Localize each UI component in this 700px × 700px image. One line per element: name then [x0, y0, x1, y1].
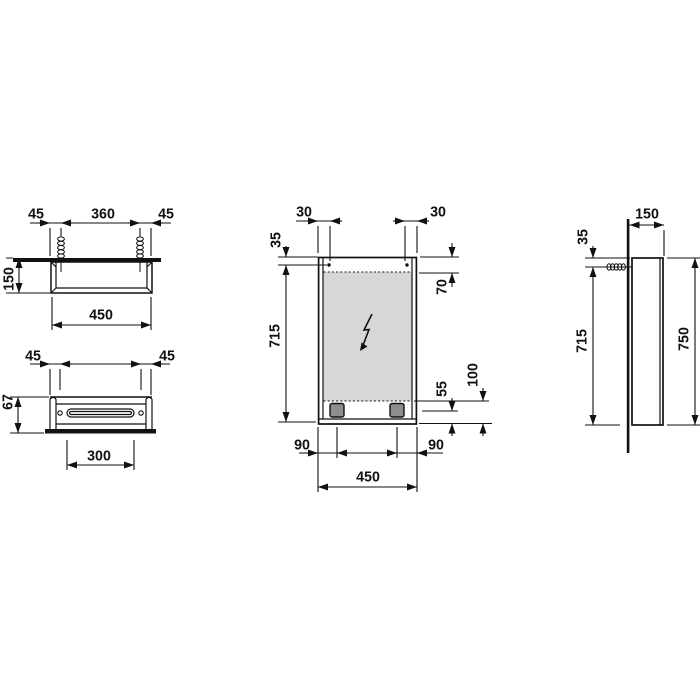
dim-front-mount-height: 715: [268, 324, 283, 348]
technical-drawing-canvas: [0, 0, 700, 700]
dim-side-depth: 150: [635, 207, 659, 222]
bottom-view-cabinet-body: [50, 397, 152, 429]
dim-front-mount-top: 35: [269, 232, 284, 248]
side-view-wall-line: [627, 219, 630, 453]
dim-side-height: 750: [677, 327, 692, 351]
dim-top-mount-left: 45: [28, 207, 44, 222]
dim-front-mount-inset-left: 30: [296, 205, 312, 220]
dim-front-glass-bottom: 100: [466, 363, 481, 387]
mirror-glass: [324, 272, 412, 401]
dim-side-mount-top: 35: [576, 229, 591, 245]
dim-side-mount-height: 715: [575, 329, 590, 353]
front-view-top-dimension-lines: [296, 221, 429, 261]
dim-top-depth: 150: [2, 267, 17, 291]
dim-bottom-mount-right: 45: [159, 349, 175, 364]
dim-top-width: 450: [89, 308, 113, 323]
dim-bottom-front-depth: 67: [1, 394, 16, 410]
dim-front-socket-height: 55: [435, 381, 450, 397]
mounting-spring-icon: [58, 237, 144, 272]
side-view-dimension-lines: [585, 225, 700, 425]
mounting-point-dots: [327, 263, 408, 266]
dim-front-socket-left: 90: [294, 438, 310, 453]
light-slot: [67, 409, 134, 417]
power-socket: [330, 404, 404, 418]
dim-front-glass-top: 70: [435, 279, 450, 295]
dim-top-mount-right: 45: [158, 207, 174, 222]
dim-front-socket-right: 90: [428, 438, 444, 453]
technical-drawing-page: 45 360 45 150 450 45 45 67 300 30 30 35 …: [0, 0, 700, 700]
dim-top-mount-spacing: 360: [91, 207, 115, 222]
side-view-cabinet-body: [632, 258, 663, 425]
dim-bottom-slot-width: 300: [87, 449, 111, 464]
front-view-drawing: [278, 221, 492, 492]
dim-front-mount-inset-right: 30: [430, 205, 446, 220]
dim-bottom-mount-left: 45: [25, 349, 41, 364]
bottom-view-front-plate: [45, 429, 156, 434]
top-view-cabinet-body: [51, 262, 152, 293]
dim-front-width: 450: [356, 470, 380, 485]
